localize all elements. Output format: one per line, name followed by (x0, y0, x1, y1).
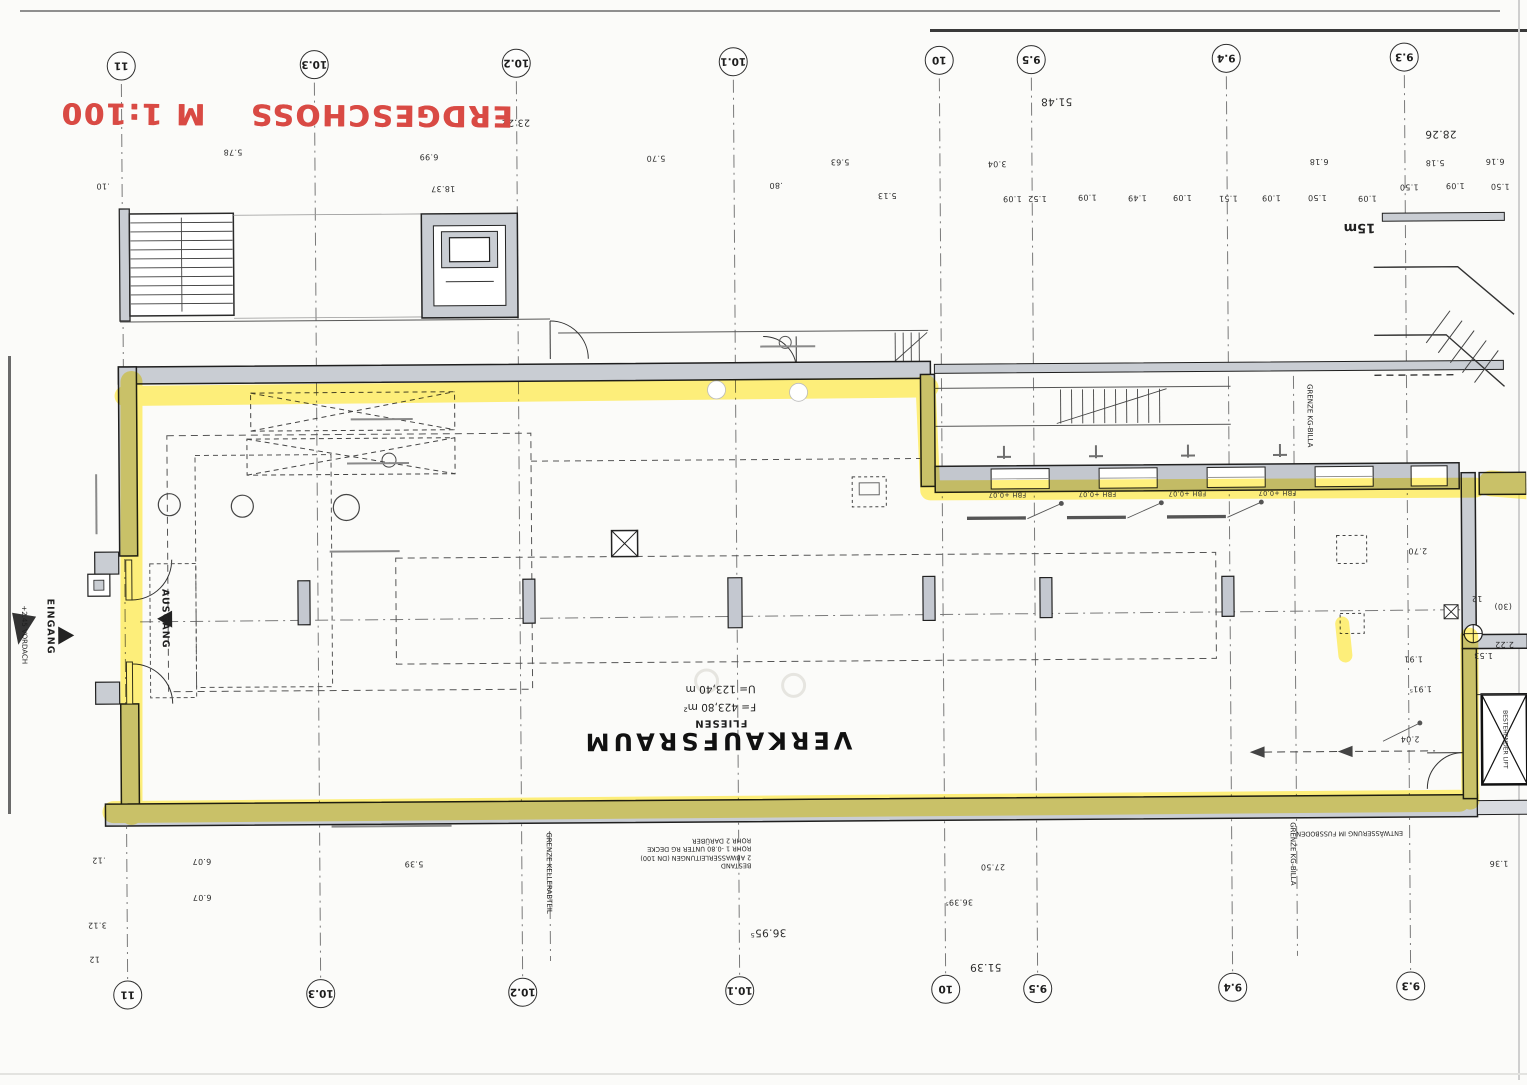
dimension-label: 2.04 (1400, 734, 1419, 743)
plan-geometry (0, 0, 1527, 1085)
dimension-label: (30) (1494, 602, 1512, 611)
dimension-label: 28.26 (1425, 128, 1457, 140)
dimension-label: 1.49 (1128, 193, 1147, 202)
dimension-label: 51.48 (1041, 95, 1073, 107)
title-stamp-floor: ERDGESCHOSS (249, 98, 513, 134)
dimension-label: 1.50 (1491, 182, 1510, 191)
room-area: F= 423,80 m² (683, 701, 756, 714)
exit-label: AUSGANG (159, 589, 170, 649)
staircase-top-left (119, 207, 422, 321)
dimension-label: 36.95⁵ (750, 926, 786, 938)
floor-level-label: FBH +0.07 (1258, 489, 1296, 497)
dimension-label: 1.09 (1358, 194, 1377, 203)
elevator-block-top (421, 213, 518, 318)
dimension-label: 1.36 (1489, 859, 1508, 868)
entrance-label: EINGANG (44, 599, 55, 655)
dimension-label: 6.07 (193, 893, 212, 902)
dimension-label: 5.39 (404, 859, 423, 868)
axis-bubble-top-11: 11 (107, 51, 136, 80)
boundary-label-keller: GRENZE KELLERABTEIL (545, 832, 554, 914)
axis-bubble-top-10-2: 10.2 (502, 49, 531, 78)
dimension-label: 1.53 (1474, 651, 1493, 660)
dimension-label: .10 (96, 182, 110, 191)
note-line: BESTAND (576, 861, 751, 871)
axis-bubble-bottom-10-1: 10.1 (725, 976, 754, 1005)
dimension-label: 12 (89, 955, 100, 964)
room-perimeter: U= 123,40 m (686, 683, 756, 695)
right-corridor-stairs (935, 386, 1231, 426)
dimension-label: 3.12 (88, 921, 107, 930)
axis-bubble-bottom-9-3: 9.3 (1396, 971, 1425, 1000)
axis-bubble-top-10: 10 (925, 46, 954, 75)
axis-bubble-bottom-10: 10 (931, 975, 960, 1004)
note-line: 2 ABWASSERLEITUNGEN (DN 100) (576, 853, 751, 863)
axis-bubble-bottom-10-2: 10.2 (508, 978, 537, 1007)
title-stamp-scale: M 1:100 (60, 96, 205, 131)
dimension-label: 1.91⁵ (1409, 684, 1432, 693)
floor-level-label: FBH +0.07 (1168, 489, 1206, 497)
dimension-label: 5.78 (223, 148, 242, 157)
dimension-label: 5.70 (646, 154, 665, 163)
scanned-floor-plan-page: { "stamp": { "part1": "ERDGESCHOSS", "pa… (0, 0, 1527, 1080)
floor-level-label: FBH +0.07 (1078, 490, 1116, 498)
dimension-label: 6.16 (1485, 157, 1504, 166)
columns-piers (298, 526, 1235, 631)
drainage-label: ENTWÄSSERUNG IM FUSSBODEN (1296, 829, 1403, 838)
axis-bubble-bottom-9-5: 9.5 (1023, 974, 1052, 1003)
dimension-label: 51.39 (970, 961, 1002, 973)
canopy-label: +2.45 VORDACH (20, 605, 28, 664)
existing-lift-label: BESTEHENDER LIFT (1501, 710, 1508, 769)
dimension-label: 1.09 (1173, 193, 1192, 202)
dimension-label: 2.22 (1495, 640, 1514, 649)
right-end-rooms (1250, 604, 1527, 790)
dimension-label: 12 (1472, 594, 1483, 603)
dimension-label: 1.50 (1400, 182, 1419, 191)
title-stamp: ERDGESCHOSSM 1:100 (60, 96, 513, 133)
axis-bubble-top-10-3: 10.3 (300, 50, 329, 79)
room-name: VERKAUFSRAUM (582, 726, 853, 756)
dimension-label: 6.07 (192, 857, 211, 866)
dimension-label: 6.99 (419, 152, 438, 161)
dimension-label: 1.50 (1308, 193, 1327, 202)
micro-annotation-marks (94, 345, 818, 829)
dimension-label: 1.09 (1078, 193, 1097, 202)
dimension-label: 6.18 (1309, 157, 1328, 166)
dimension-label: 36.39⁵ (945, 898, 973, 907)
axis-bubble-top-9-3: 9.3 (1390, 42, 1419, 71)
dimension-label: 1.09 (1446, 181, 1465, 190)
dimension-label: 1.51 (1219, 194, 1238, 203)
grid-lines (121, 75, 1462, 982)
dimension-label: 3.04 (987, 159, 1006, 168)
dimension-label: 2.70 (1408, 546, 1427, 555)
dimension-label: 18.37 (431, 184, 455, 193)
dimension-label: .12 (92, 856, 106, 865)
boundary-label-billa: GRENZE KG-BILLA (1306, 384, 1314, 447)
axis-bubble-top-9-5: 9.5 (1017, 45, 1046, 74)
interior-dashed (158, 385, 1368, 691)
axis-bubble-bottom-9-4: 9.4 (1218, 973, 1247, 1002)
dimension-label: .80 (769, 181, 783, 190)
existing-pipes-note: BESTAND 2 ABWASSERLEITUNGEN (DN 100) ROH… (576, 836, 751, 871)
note-line: ROHR 1 -0.80 UNTER RG DECKE (576, 844, 751, 854)
dimension-label: 5.63 (830, 157, 849, 166)
axis-bubble-bottom-10-3: 10.3 (306, 979, 335, 1008)
dimension-label: 1.09 (1262, 193, 1281, 202)
floor-level-label: FBH +0.07 (988, 491, 1026, 499)
note-line: ROHR 2 DARÜBER (576, 836, 751, 846)
scale-bar-label: 15m (1344, 220, 1376, 235)
dimension-label: 1.09 (1003, 194, 1022, 203)
axis-bubble-bottom-11: 11 (113, 980, 142, 1009)
axis-bubble-top-9-4: 9.4 (1212, 44, 1241, 73)
dimension-label: 27.50 (981, 862, 1005, 871)
dimension-label: 5.18 (1425, 158, 1444, 167)
dimension-label: 1.52 (1028, 194, 1047, 203)
dimension-label: 1.91 (1404, 654, 1423, 663)
axis-bubble-top-10-1: 10.1 (719, 47, 748, 76)
dimension-label: 5.13 (878, 191, 897, 200)
floor-plan-drawing: ERDGESCHOSSM 1:100 11 10.3 10.2 10.1 10 … (0, 0, 1527, 1085)
